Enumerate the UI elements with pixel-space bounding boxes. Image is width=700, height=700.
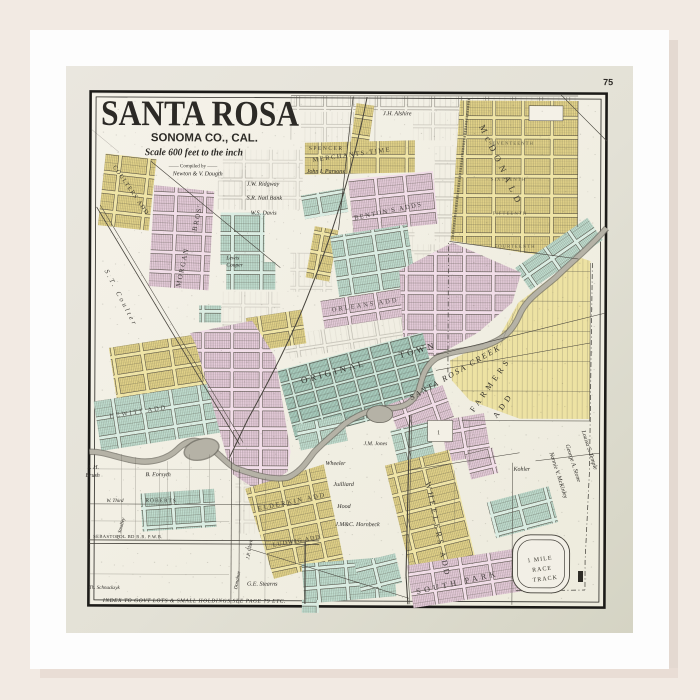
svg-text:—— Compiled by ——: —— Compiled by —— xyxy=(168,164,218,169)
svg-text:SPENCER: SPENCER xyxy=(309,146,344,152)
svg-text:J.M. Jones: J.M. Jones xyxy=(364,441,388,447)
svg-text:G.E. Stearns: G.E. Stearns xyxy=(247,582,278,588)
svg-text:INDEX TO GOVT LOTS & SMALL HOL: INDEX TO GOVT LOTS & SMALL HOLDINGS SEE … xyxy=(102,598,286,605)
svg-text:75: 75 xyxy=(603,77,613,87)
svg-text:John I. Parsons: John I. Parsons xyxy=(307,169,346,175)
svg-text:W.S. Davis: W.S. Davis xyxy=(251,211,278,217)
svg-text:1: 1 xyxy=(437,430,440,436)
svg-text:Brush: Brush xyxy=(85,473,99,479)
svg-text:Lewis: Lewis xyxy=(225,255,239,261)
svg-text:Kohler: Kohler xyxy=(512,467,530,473)
svg-text:J.M&C. Hornbeck: J.M&C. Hornbeck xyxy=(335,522,380,528)
svg-text:J. H.: J. H. xyxy=(87,465,99,471)
svg-text:J.W. Ridgway: J.W. Ridgway xyxy=(247,182,280,188)
svg-text:Th. Schnackzyk: Th. Schnackzyk xyxy=(89,586,121,591)
svg-text:S.R. Natl Bank: S.R. Natl Bank xyxy=(247,196,283,202)
svg-text:SANTA ROSA: SANTA ROSA xyxy=(101,93,299,134)
svg-text:Cooper: Cooper xyxy=(226,262,243,268)
svg-text:B. Forsyth: B. Forsyth xyxy=(145,472,170,478)
svg-text:Wheeler: Wheeler xyxy=(325,461,346,467)
svg-text:SONOMA CO., CAL.: SONOMA CO., CAL. xyxy=(151,132,258,144)
svg-text:ROBERTS: ROBERTS xyxy=(145,498,176,504)
svg-text:Hood: Hood xyxy=(336,504,351,510)
svg-text:Juilliard: Juilliard xyxy=(333,482,354,488)
svg-text:Newton & V. Dougth: Newton & V. Dougth xyxy=(172,171,223,177)
svg-text:J.H. Alshire: J.H. Alshire xyxy=(383,111,412,117)
svg-text:W. Third: W. Third xyxy=(106,499,124,504)
svg-text:SEBASTOPOL BD R.R. P.W.B.: SEBASTOPOL BD R.R. P.W.B. xyxy=(93,534,163,539)
svg-text:Scale 600 feet to the inch: Scale 600 feet to the inch xyxy=(145,147,243,158)
